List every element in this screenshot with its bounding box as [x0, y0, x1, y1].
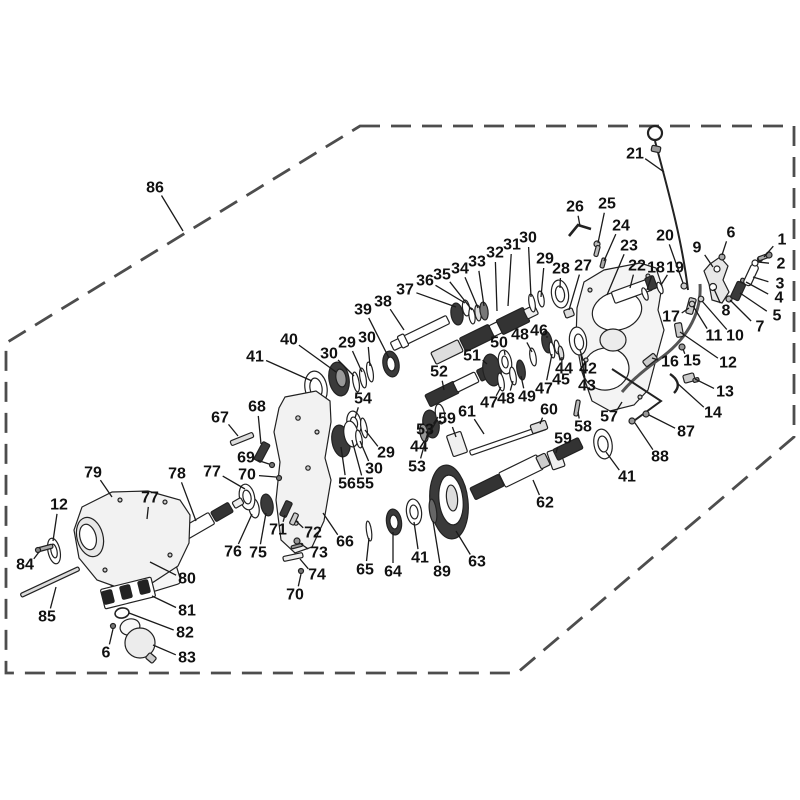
leader-line-83: [153, 645, 176, 655]
callout-65: 65: [356, 562, 374, 579]
callout-52: 52: [430, 364, 448, 381]
callout-23: 23: [620, 238, 638, 255]
callout-32: 32: [486, 245, 504, 262]
callout-6: 6: [727, 225, 736, 242]
front-shaft-78-spline-1: [211, 502, 234, 522]
callout-78: 78: [168, 466, 186, 483]
parts-diagram-page: 1234566789101112121314151617181920212223…: [0, 0, 800, 800]
leader-line-63: [456, 531, 470, 555]
leader-line-4: [746, 282, 768, 294]
leader-line-41: [266, 361, 312, 382]
callout-27: 27: [574, 258, 592, 275]
callout-60: 60: [540, 402, 558, 419]
callout-38: 38: [374, 294, 392, 311]
case-bolt-dot: [103, 568, 107, 572]
callout-56: 56: [338, 476, 356, 493]
callout-77: 77: [141, 490, 159, 507]
callout-87: 87: [677, 424, 695, 441]
leader-line-70: [298, 574, 301, 586]
callout-41: 41: [411, 550, 429, 567]
pin-70-a: [277, 476, 282, 481]
callout-62: 62: [536, 495, 554, 512]
ring-48-a: [528, 348, 537, 367]
callout-9: 9: [693, 240, 702, 257]
callout-66: 66: [336, 534, 354, 551]
callout-80: 80: [178, 571, 196, 588]
leader-line-81: [152, 596, 176, 608]
callout-74: 74: [308, 567, 326, 584]
callout-40: 40: [280, 332, 298, 349]
callout-69: 69: [237, 450, 255, 467]
callout-70: 70: [286, 587, 304, 604]
callout-64: 64: [384, 564, 402, 581]
gear-75: [259, 493, 275, 517]
leader-line-3: [753, 277, 768, 282]
leader-line-85: [50, 587, 56, 608]
callout-48: 48: [497, 391, 515, 408]
callout-35: 35: [433, 267, 451, 284]
leader-line-7: [730, 300, 751, 321]
callout-10: 10: [726, 328, 744, 345]
callout-88: 88: [651, 449, 669, 466]
callout-30: 30: [519, 230, 537, 247]
leader-line-2: [758, 262, 769, 263]
case-bolt-dot: [168, 553, 172, 557]
pin-58: [574, 400, 581, 416]
callout-53: 53: [408, 459, 426, 476]
callout-75: 75: [249, 545, 267, 562]
breather-elbow-26: [569, 225, 591, 236]
callout-26: 26: [566, 199, 584, 216]
callout-41: 41: [246, 349, 264, 366]
callout-68: 68: [248, 399, 266, 416]
leader-line-41: [606, 452, 619, 470]
leader-line-86: [162, 196, 184, 232]
leader-line-25: [598, 213, 604, 243]
callout-22: 22: [628, 258, 646, 275]
exploded-view-diagram: 1234566789101112121314151617181920212223…: [0, 0, 800, 800]
callout-13: 13: [716, 384, 734, 401]
callout-29: 29: [536, 251, 554, 268]
screw-70-b: [299, 569, 304, 574]
leader-line-37: [416, 293, 456, 307]
callout-54: 54: [354, 391, 372, 408]
case-bolt-dot: [588, 288, 592, 292]
callout-59: 59: [554, 431, 572, 448]
case-bolt-dot: [306, 466, 310, 470]
callout-21: 21: [626, 146, 644, 163]
leader-line-87: [649, 415, 675, 428]
nut-11: [689, 301, 695, 307]
leader-line-74: [300, 559, 308, 569]
leader-line-24: [604, 234, 616, 261]
leader-line-75: [260, 513, 266, 544]
washer-2: [752, 260, 758, 266]
callout-30: 30: [358, 330, 376, 347]
callout-17: 17: [662, 309, 680, 326]
leader-line-36: [436, 285, 466, 303]
callout-51: 51: [463, 348, 481, 365]
callout-57: 57: [600, 409, 618, 426]
callout-84: 84: [16, 557, 34, 574]
leader-line-30: [529, 247, 531, 297]
case-bolt-dot: [315, 430, 319, 434]
callout-71: 71: [269, 522, 287, 539]
o-ring-82: [114, 607, 130, 619]
callout-36: 36: [416, 273, 434, 290]
callout-37: 37: [396, 282, 414, 299]
leader-line-88: [635, 423, 653, 450]
pin-67: [230, 432, 254, 446]
screw-87: [643, 411, 649, 417]
leader-line-84: [34, 552, 39, 559]
spring-68: [254, 441, 270, 462]
callout-43: 43: [578, 378, 596, 395]
leader-line-33: [479, 271, 484, 306]
callout-31: 31: [503, 237, 521, 254]
nut-20: [681, 283, 687, 289]
callout-1: 1: [778, 232, 787, 249]
dipstick-handle-21: [648, 126, 662, 140]
screw-69: [270, 463, 275, 468]
leader-line-76: [238, 514, 252, 544]
leader-line-50: [504, 351, 505, 355]
callout-79: 79: [84, 465, 102, 482]
input-shaft-38: [390, 315, 450, 350]
screw-15: [679, 344, 685, 350]
leader-line-32: [495, 262, 497, 311]
case-bolt-dot: [118, 498, 122, 502]
leader-line-68: [258, 416, 261, 444]
leader-line-31: [508, 254, 511, 306]
callout-55: 55: [356, 476, 374, 493]
callout-28: 28: [552, 261, 570, 278]
main-case-hub: [600, 329, 626, 351]
leader-line-66: [323, 513, 338, 535]
callout-72: 72: [304, 525, 322, 542]
plate-3: [743, 263, 760, 286]
callout-49: 49: [518, 389, 536, 406]
screw-73: [294, 538, 300, 544]
callout-4: 4: [775, 290, 784, 307]
case-bolt-dot: [638, 395, 642, 399]
callout-34: 34: [451, 261, 469, 278]
leader-line-6: [109, 629, 113, 644]
leader-line-45: [562, 357, 563, 371]
callout-73: 73: [310, 545, 328, 562]
callout-59: 59: [438, 411, 456, 428]
callout-85: 85: [38, 609, 56, 626]
leader-line-14: [677, 383, 704, 407]
callout-20: 20: [656, 228, 674, 245]
callout-8: 8: [722, 303, 731, 320]
callout-25: 25: [598, 196, 616, 213]
diagram-parts: [20, 126, 772, 664]
leader-line-12: [53, 514, 57, 541]
mainshaft-grooved: [431, 340, 464, 365]
callout-29: 29: [377, 445, 395, 462]
leader-line-41: [414, 522, 418, 549]
fork-pad-59-a: [446, 431, 467, 457]
callout-6: 6: [102, 645, 111, 662]
callout-76: 76: [224, 544, 242, 561]
case-bolt-dot: [296, 416, 300, 420]
leader-line-13: [695, 379, 714, 388]
callout-81: 81: [178, 603, 196, 620]
leader-line-6: [722, 241, 727, 255]
countershaft-52-body: [453, 372, 479, 392]
washer-8: [710, 284, 717, 291]
plunger-60: [530, 420, 548, 434]
screw-6-bottom: [111, 624, 116, 629]
callout-70: 70: [238, 467, 256, 484]
callout-15: 15: [683, 353, 701, 370]
dipstick-collar: [651, 145, 661, 153]
callout-33: 33: [468, 254, 486, 271]
callout-11: 11: [706, 328, 723, 345]
callout-86: 86: [146, 180, 164, 197]
ring-47-b: [496, 373, 505, 392]
callout-61: 61: [458, 404, 476, 421]
leader-line-30: [360, 441, 369, 461]
callout-48: 48: [511, 327, 529, 344]
leader-line-38: [390, 309, 404, 330]
callout-41: 41: [618, 469, 636, 486]
leader-line-65: [367, 538, 370, 561]
callout-24: 24: [612, 218, 630, 235]
leader-line-70: [259, 476, 276, 477]
leader-line-61: [474, 419, 484, 434]
callout-47: 47: [480, 395, 498, 412]
callout-16: 16: [661, 354, 679, 371]
callout-12: 12: [719, 355, 737, 372]
nut-10: [698, 296, 704, 302]
callout-83: 83: [178, 650, 196, 667]
callout-77: 77: [203, 464, 221, 481]
case-bolt-dot: [163, 500, 167, 504]
callout-29: 29: [338, 335, 356, 352]
bolt-25-shank: [594, 245, 601, 257]
callout-18: 18: [647, 260, 665, 277]
bolt-84-head: [36, 548, 41, 553]
splined-pin-5: [730, 281, 746, 301]
callout-50: 50: [490, 335, 508, 352]
callout-47: 47: [535, 381, 553, 398]
screw-88: [629, 418, 635, 424]
leader-line-67: [229, 424, 239, 436]
callout-39: 39: [354, 302, 372, 319]
callout-45: 45: [552, 372, 570, 389]
callout-2: 2: [777, 256, 786, 273]
callout-12: 12: [50, 497, 68, 514]
bracket-hole: [714, 266, 720, 272]
callout-58: 58: [574, 419, 592, 436]
callout-7: 7: [756, 319, 765, 336]
callout-46: 46: [530, 323, 548, 340]
callout-30: 30: [320, 346, 338, 363]
callout-67: 67: [211, 410, 229, 427]
output-shaft-62-spline-left: [470, 474, 504, 500]
leader-line-29: [365, 430, 378, 446]
callout-14: 14: [704, 405, 722, 422]
leader-line-5: [740, 293, 767, 311]
callout-82: 82: [176, 625, 194, 642]
leader-line-29: [353, 351, 363, 372]
callout-5: 5: [773, 308, 782, 325]
callout-89: 89: [433, 564, 451, 581]
callout-63: 63: [468, 554, 486, 571]
leader-line-62: [533, 480, 539, 495]
